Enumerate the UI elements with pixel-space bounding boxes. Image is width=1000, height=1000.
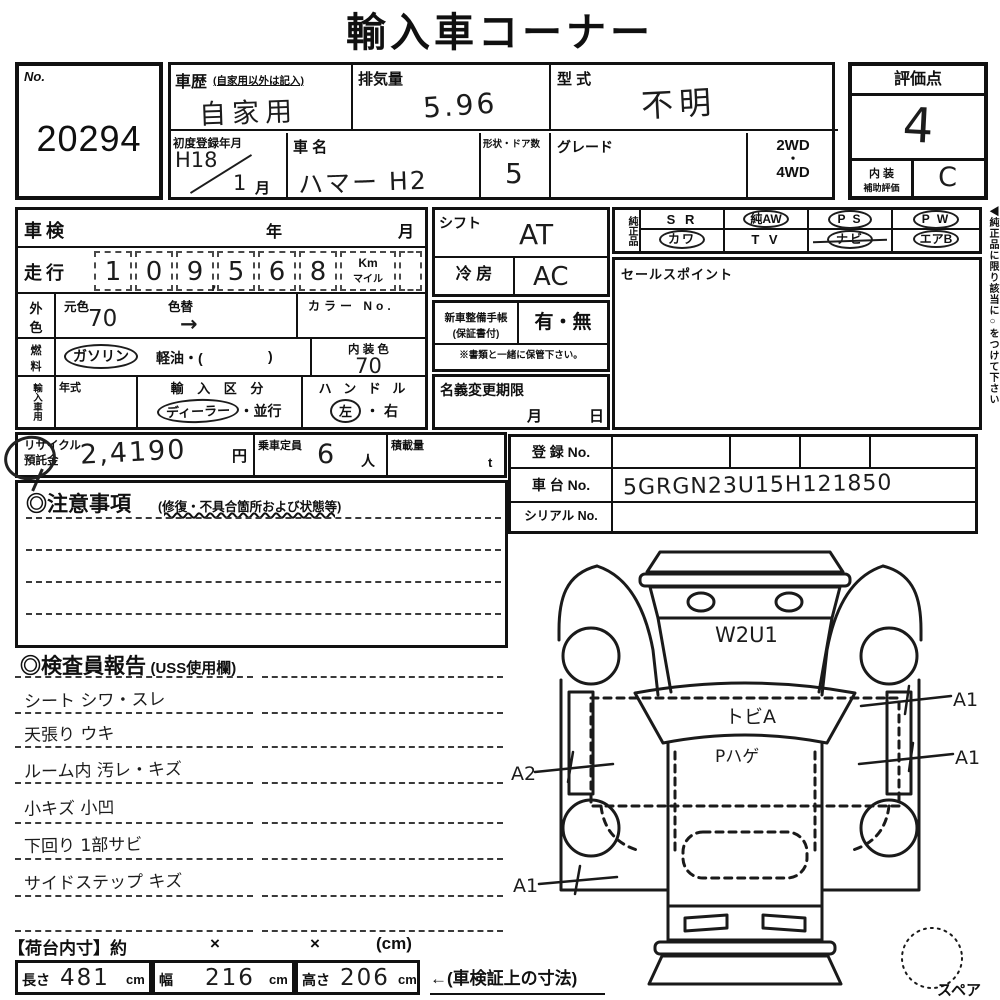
doors-cell: 形状・ドア数 5	[481, 133, 551, 200]
rear-window	[683, 832, 807, 878]
report-line	[15, 746, 253, 748]
shift-label: シフト	[439, 213, 481, 233]
report-entry: 下回り 1部サビ	[24, 830, 143, 857]
mileage-empty-cell	[399, 251, 422, 291]
left-lower-mark: A1	[513, 875, 538, 897]
shift-cell: シフト AT	[435, 210, 607, 258]
mileage-label: 走行	[24, 259, 68, 285]
registration-no-subcell	[613, 437, 731, 469]
roof-annotation: Pハゲ	[715, 747, 759, 767]
first-registration-era: H18	[175, 148, 218, 172]
history-cell: 車歴 (自家用以外は記入) 自家用	[171, 65, 353, 131]
lot-number-box: No. 20294	[15, 62, 163, 200]
handle-dot: ・	[366, 403, 380, 419]
fuel-row: 燃 料 ガソリン 軽油・( ) 内 装 色 70	[18, 339, 425, 377]
height-unit: cm	[398, 972, 417, 987]
fuel-diesel-label: 軽油・(	[156, 348, 203, 368]
drive-type-cell: 2WD ・ 4WD	[748, 133, 838, 200]
width-box: 幅 216 cm	[152, 960, 295, 995]
car-name-label: 車 名	[293, 136, 327, 157]
mileage-digit-cell: 0	[135, 251, 173, 291]
history-label: 車歴	[175, 68, 207, 92]
report-line	[262, 782, 503, 784]
height-box: 高さ 206 cm	[295, 960, 420, 995]
cargo-dims-x1: ×	[210, 934, 220, 954]
length-label: 長さ	[22, 970, 50, 990]
model-code-label: 型 式	[557, 68, 591, 89]
lot-number-value: 20294	[19, 118, 159, 160]
interior-rating-label: 内 装 補助評価	[852, 161, 914, 199]
rear-bumper	[649, 956, 841, 984]
report-line	[15, 712, 253, 714]
right-upper-mark: A1	[953, 689, 978, 711]
recycle-yen-unit: 円	[232, 445, 247, 466]
mileage-digit-cell: 6	[258, 251, 296, 291]
first-registration-month-num: 1	[233, 171, 246, 195]
width-unit: cm	[269, 972, 288, 987]
report-entry: サイドステップ キズ	[24, 867, 183, 895]
ac-value: AC	[533, 262, 568, 292]
capacity-label: 乗車定員	[258, 437, 302, 453]
color-no-cell: カラー No.	[296, 294, 425, 339]
tail-light-left	[685, 915, 727, 931]
model-code-cell: 型 式 不明	[551, 65, 838, 131]
genuine-sr: S R	[641, 210, 725, 230]
cargo-dims-header: 【荷台内寸】約	[8, 934, 127, 959]
report-line	[15, 822, 253, 824]
registration-block: 登 録 No. 車 台 No. 5GRGN23U15H121850 シリアル N…	[508, 434, 978, 534]
left-data-block: 車検 年 月 走行 1 0 9 , 5 6 8 Km マイル	[15, 207, 428, 430]
genuine-navi: ナビ	[809, 230, 893, 251]
left-rear-wheel	[563, 800, 619, 856]
shaken-label: 車検	[24, 217, 68, 243]
doors-value: 5	[505, 157, 523, 190]
length-value: 481	[60, 965, 110, 991]
report-line	[15, 782, 253, 784]
front-bar	[640, 574, 850, 586]
grade-label: グレード	[557, 137, 613, 157]
length-box: 長さ 481 cm	[15, 960, 152, 995]
history-value: 自家用	[198, 89, 298, 131]
mileage-digit-cell: 1	[94, 251, 132, 291]
report-line	[15, 895, 253, 897]
registration-no-row: 登 録 No.	[511, 437, 975, 469]
headlight-right	[776, 593, 802, 611]
front-face	[650, 587, 840, 618]
fuel-gasoline: ガソリン	[64, 344, 138, 369]
name-change-label: 名義変更期限	[440, 380, 524, 400]
report-line	[15, 930, 253, 932]
import-class-parallel: ・並行	[240, 403, 282, 419]
hood-edge-left	[658, 618, 671, 692]
service-book-note: ※書類と一緒に保管下さい。	[435, 345, 607, 369]
cargo-dims-cm: (cm)	[376, 934, 412, 954]
left-front-wheel	[563, 628, 619, 684]
headlight-left	[688, 593, 714, 611]
rating-box: 評価点 4 内 装 補助評価 C	[848, 62, 988, 200]
mileage-digit-cell: 9	[176, 251, 214, 291]
car-name-cell: 車 名 ハマー H2	[288, 133, 481, 200]
report-line	[262, 676, 503, 678]
drive-dot: ・	[748, 154, 838, 164]
interior-color-value: 70	[312, 357, 425, 375]
recycle-value: 2,4190	[79, 434, 187, 471]
model-year-cell: 年式	[56, 377, 138, 427]
exterior-color-header: 外 色	[18, 294, 56, 339]
chassis-no-value: 5GRGN23U15H121850	[623, 471, 893, 501]
load-unit: t	[488, 455, 492, 470]
load-label: 積載量	[391, 437, 424, 453]
spare-label: スペア	[937, 982, 981, 999]
right-lower-mark: A1	[955, 747, 980, 769]
report-line	[262, 822, 503, 824]
caution-line	[26, 517, 501, 519]
registration-no-label: 登 録 No.	[511, 437, 613, 469]
spare-tire-circle	[902, 928, 962, 988]
drive-4wd: 4WD	[748, 164, 838, 181]
shaken-dims-note: ←(車検証上の寸法)	[430, 964, 605, 995]
report-line	[262, 746, 503, 748]
inspector-report-title: ◎検査員報告	[20, 655, 146, 678]
caution-line	[26, 613, 501, 615]
mileage-unit-cell: Km マイル	[340, 251, 396, 291]
first-registration-cell: 初度登録年月 H18 1 月	[171, 133, 288, 200]
fuel-header: 燃 料	[18, 339, 56, 377]
recycle-row: リサイクル 預託金 2,4190 円 乗車定員 6 人 積載量 t	[15, 432, 507, 478]
interior-rating-row: 内 装 補助評価 C	[852, 158, 984, 196]
report-line	[262, 712, 503, 714]
cautions-header: ◎注意事項	[26, 488, 131, 518]
handle-label: ハ ン ド ル	[303, 378, 425, 397]
height-value: 206	[340, 965, 390, 991]
hood-annotation: W2U1	[715, 623, 778, 647]
report-entry: シート シワ・スレ	[24, 685, 166, 712]
first-registration-month-label: 月	[255, 177, 270, 198]
genuine-power-steering: P S	[809, 210, 893, 230]
c-pillar-right	[853, 806, 889, 850]
handle-right: 右	[384, 403, 398, 419]
genuine-power-windows: P W	[893, 210, 979, 230]
km-unit: Km	[342, 256, 394, 270]
genuine-airbag: エアB	[893, 230, 979, 251]
color-no-label: カラー No.	[308, 297, 395, 314]
handle-left: 左	[330, 399, 361, 423]
shaken-row: 車検 年 月	[18, 210, 425, 248]
load-cell: 積載量 t	[388, 435, 504, 475]
tail-light-right	[763, 915, 805, 931]
interior-color-cell: 内 装 色 70	[310, 339, 425, 377]
service-book-block: 新車整備手帳 (保証書付) 有・無 ※書類と一緒に保管下さい。	[432, 300, 610, 372]
lot-number-label: No.	[24, 69, 45, 84]
mile-unit: マイル	[342, 270, 394, 285]
cautions-box: ◎注意事項 (修復・不具合箇所および状態等)	[15, 480, 508, 648]
capacity-cell: 乗車定員 6 人	[255, 435, 388, 475]
side-note: ◀純正品に限り該当に○をつけて下さい	[985, 206, 1000, 536]
length-unit: cm	[126, 972, 145, 987]
car-left-side-panel	[559, 566, 668, 890]
mileage-digit-cell: 8	[299, 251, 337, 291]
displacement-label: 排気量	[358, 68, 403, 89]
mileage-row: 走行 1 0 9 , 5 6 8 Km マイル	[18, 248, 425, 294]
inspector-report-note: (USS使用欄)	[150, 660, 236, 677]
cargo-dims-x2: ×	[310, 934, 320, 954]
genuine-alloy-wheels: 純AW	[725, 210, 809, 230]
capacity-value: 6	[317, 439, 334, 470]
repaint-arrow: →	[180, 312, 198, 336]
windshield-annotation: トビA	[725, 706, 776, 728]
name-change-month: 月	[527, 405, 542, 426]
rating-header: 評価点	[852, 66, 984, 96]
import-row: 輸入車用 年式 輸 入 区 分 ディーラー・並行 ハ ン ド ル 左 ・ 右	[18, 377, 425, 427]
exterior-color-row: 外 色 元色 70 色替 → カラー No.	[18, 294, 425, 339]
vehicle-diagram: W2U1 トビA Pハゲ A2 A1 A1 A1 スペア	[505, 540, 997, 1000]
car-top-view	[591, 552, 899, 984]
sales-point-box: セールスポイント	[612, 257, 982, 430]
right-front-wheel	[861, 628, 917, 684]
chassis-no-label: 車 台 No.	[511, 469, 613, 503]
height-label: 高さ	[302, 970, 330, 990]
model-code-value: 不明	[640, 77, 718, 127]
import-class-label: 輸 入 区 分	[138, 378, 301, 397]
chassis-no-row: 車 台 No. 5GRGN23U15H121850	[511, 469, 975, 503]
shaken-year-label: 年	[266, 218, 282, 242]
report-line	[262, 895, 503, 897]
model-year-label: 年式	[59, 379, 81, 395]
genuine-tv: T V	[725, 230, 809, 251]
registration-no-subcell	[871, 437, 975, 469]
grade-cell: グレード	[551, 133, 748, 200]
page-title: 輸入車コーナー	[0, 0, 1000, 58]
displacement-cell: 排気量 5.96	[353, 65, 551, 131]
report-entry: 天張り ウキ	[24, 719, 115, 746]
shift-value: AT	[519, 218, 553, 251]
report-line	[15, 676, 253, 678]
width-label: 幅	[159, 970, 173, 990]
name-change-day: 日	[589, 405, 604, 426]
left-upper-mark: A2	[511, 763, 536, 785]
rear-bar	[655, 942, 835, 954]
shift-ac-block: シフト AT 冷 房 AC	[432, 207, 610, 297]
history-note: (自家用以外は記入)	[213, 73, 304, 88]
report-line	[262, 930, 503, 932]
base-color-value: 70	[88, 306, 117, 332]
displacement-value: 5.96	[422, 86, 498, 124]
caution-line	[26, 549, 501, 551]
report-entry: ルーム内 汚レ・キズ	[24, 755, 182, 783]
serial-no-label: シリアル No.	[511, 503, 613, 531]
report-line	[262, 858, 503, 860]
import-header: 輸入車用	[18, 377, 56, 427]
width-value: 216	[205, 965, 255, 991]
report-line	[15, 858, 253, 860]
service-book-row: 新車整備手帳 (保証書付) 有・無	[435, 303, 607, 345]
service-book-label: 新車整備手帳 (保証書付)	[435, 303, 519, 345]
report-entry: 小キズ 小凹	[24, 793, 115, 820]
handle-cell: ハ ン ド ル 左 ・ 右	[303, 377, 425, 427]
ac-row: 冷 房 AC	[435, 258, 607, 294]
serial-no-row: シリアル No.	[511, 503, 975, 531]
mileage-digit-cell: 5	[217, 251, 255, 291]
base-color-label: 元色	[64, 296, 89, 315]
front-bumper	[647, 552, 843, 572]
auction-sheet: 輸入車コーナー No. 20294 車歴 (自家用以外は記入) 自家用 排気量 …	[0, 0, 1000, 1000]
shaken-month-label: 月	[398, 218, 414, 242]
import-class-dealer: ディーラー	[157, 398, 240, 425]
car-name-value: ハマー H2	[297, 161, 428, 202]
capacity-unit: 人	[361, 451, 375, 471]
fuel-diesel-close: )	[268, 348, 273, 364]
doors-label: 形状・ドア数	[483, 136, 540, 150]
name-change-block: 名義変更期限 月 日	[432, 374, 610, 430]
registration-no-subcell	[731, 437, 801, 469]
service-book-value: 有・無	[519, 303, 607, 345]
rating-score: 4	[850, 93, 985, 162]
left-sill	[569, 692, 593, 794]
genuine-parts-grid: 純正品 S R 純AW P S P W カワ T V ナビ エアB	[612, 207, 982, 254]
header-table: 車歴 (自家用以外は記入) 自家用 排気量 5.96 型 式 不明 初度登録年月…	[168, 62, 835, 200]
caution-line	[26, 581, 501, 583]
cautions-note: (修復・不具合箇所および状態等)	[158, 496, 341, 515]
genuine-leather: カワ	[641, 230, 725, 251]
interior-rating-score: C	[914, 161, 981, 199]
genuine-parts-header: 純正品	[615, 210, 641, 251]
registration-no-subcell	[801, 437, 871, 469]
import-class-cell: 輸 入 区 分 ディーラー・並行	[138, 377, 303, 427]
ac-label: 冷 房	[435, 258, 515, 294]
sales-point-label: セールスポイント	[621, 264, 733, 283]
